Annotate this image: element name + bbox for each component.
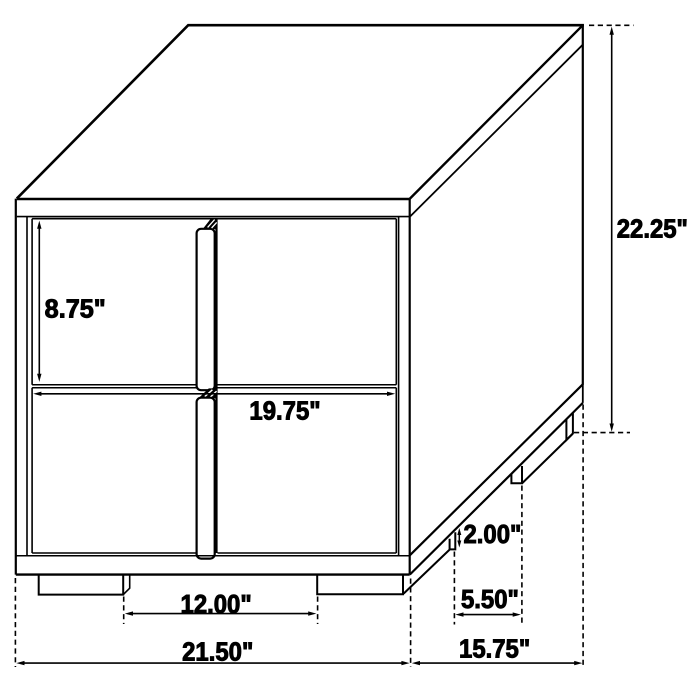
svg-text:5.50": 5.50" (461, 585, 519, 614)
svg-text:19.75": 19.75" (249, 396, 320, 425)
svg-text:2.00": 2.00" (463, 520, 521, 549)
svg-text:8.75": 8.75" (45, 295, 106, 323)
svg-text:15.75": 15.75" (459, 634, 530, 663)
svg-text:22.25": 22.25" (617, 214, 688, 243)
svg-text:12.00": 12.00" (181, 590, 252, 619)
svg-text:21.50": 21.50" (182, 638, 253, 667)
